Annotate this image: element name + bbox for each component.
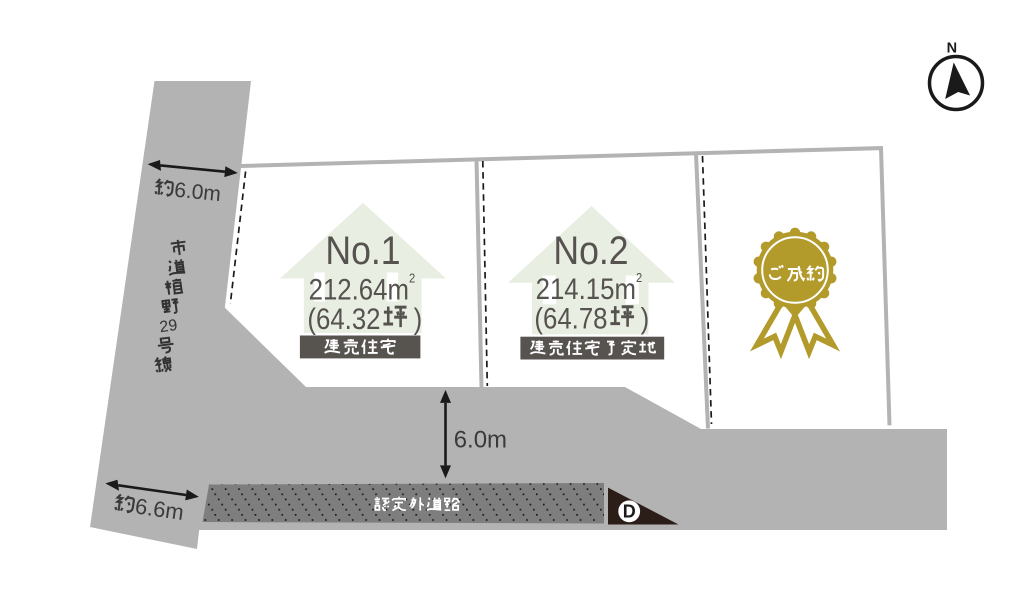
- svg-text:D: D: [623, 502, 636, 522]
- svg-text:): ): [414, 302, 423, 335]
- svg-text:6.0m: 6.0m: [173, 179, 222, 206]
- svg-text:No.2: No.2: [553, 229, 628, 273]
- svg-text:N: N: [947, 41, 957, 57]
- svg-text:214.15m2: 214.15m2: [536, 270, 643, 305]
- svg-text:): ): [641, 302, 650, 335]
- svg-text:(64.32: (64.32: [307, 302, 380, 335]
- svg-text:212.64m2: 212.64m2: [309, 271, 416, 306]
- svg-text:No.1: No.1: [325, 229, 400, 273]
- svg-text:6.0m: 6.0m: [454, 427, 507, 454]
- svg-text:29: 29: [159, 317, 179, 336]
- svg-text:(64.78: (64.78: [534, 302, 607, 335]
